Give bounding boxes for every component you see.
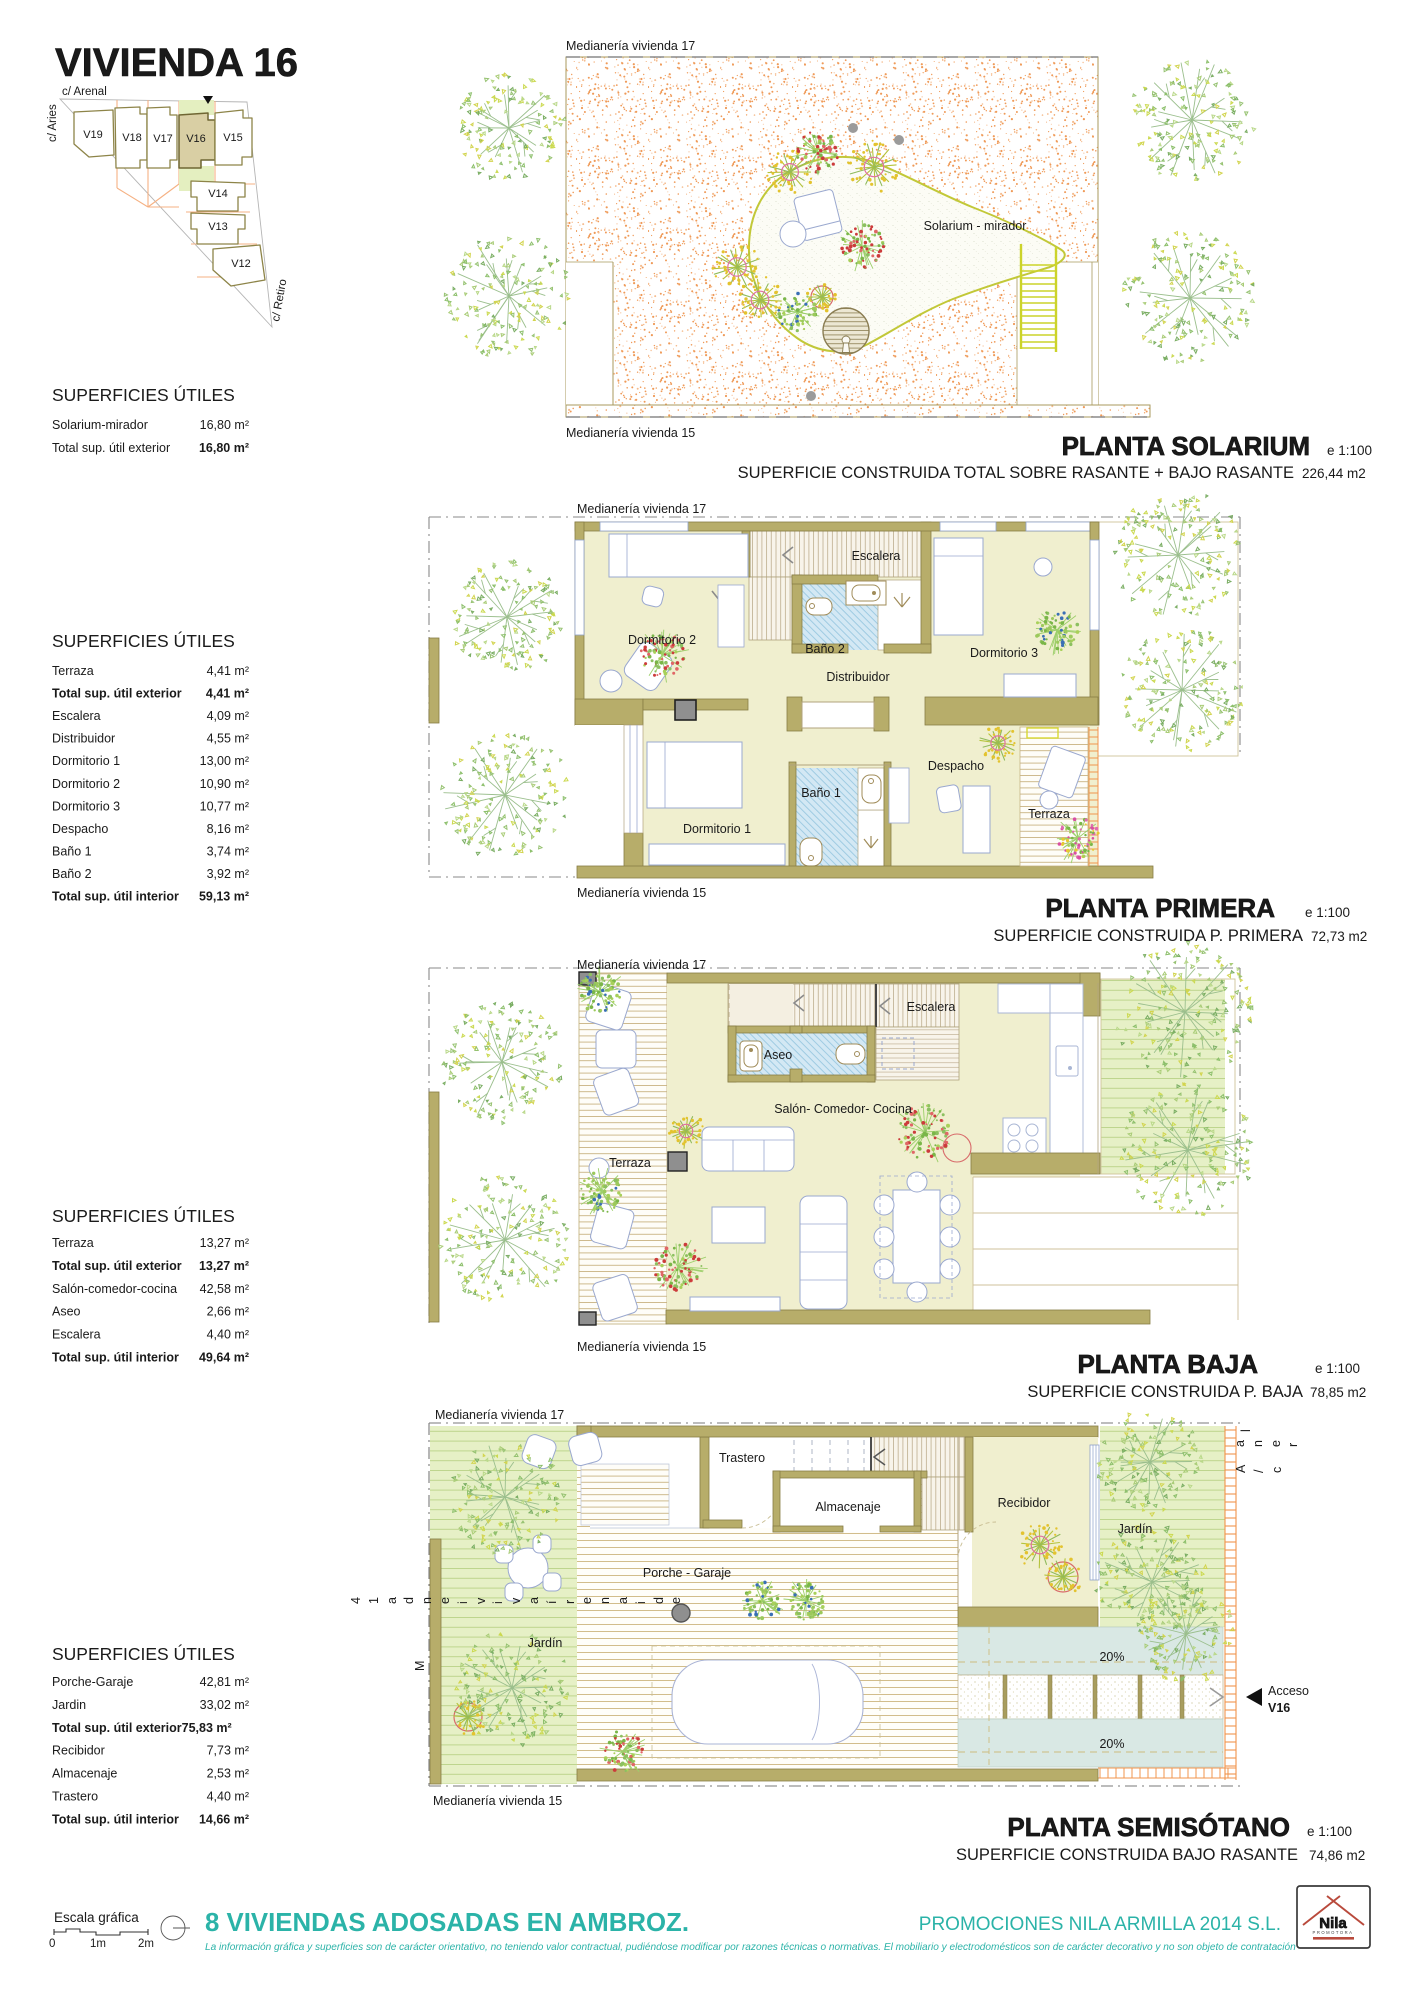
svg-text:4,55 m²: 4,55 m²: [207, 732, 249, 746]
svg-text:Escalera: Escalera: [52, 1328, 101, 1342]
svg-text:Medianería vivienda 15: Medianería vivienda 15: [577, 886, 706, 900]
svg-text:Almacenaje: Almacenaje: [815, 1500, 880, 1514]
svg-text:Medianería vivienda 17: Medianería vivienda 17: [566, 39, 695, 53]
svg-text:a: a: [616, 1597, 630, 1604]
svg-text:SUPERFICIE CONSTRUIDA P. BAJA: SUPERFICIE CONSTRUIDA P. BAJA: [1027, 1383, 1303, 1401]
svg-text:PLANTA SOLARIUM: PLANTA SOLARIUM: [1062, 431, 1310, 461]
svg-text:í: í: [545, 1600, 559, 1604]
svg-text:Aseo: Aseo: [764, 1048, 793, 1062]
svg-text:42,58 m²: 42,58 m²: [200, 1282, 249, 1296]
svg-text:3,74 m²: 3,74 m²: [207, 844, 249, 858]
svg-text:n: n: [1251, 1440, 1265, 1447]
svg-text:c: c: [1270, 1467, 1284, 1473]
svg-text:V13: V13: [208, 221, 228, 233]
svg-text:Total sup. útil exterior: Total sup. útil exterior: [52, 441, 170, 455]
svg-text:l: l: [1239, 1429, 1253, 1432]
svg-text:Distribuidor: Distribuidor: [826, 670, 889, 684]
svg-text:Porche-Garaje: Porche-Garaje: [52, 1675, 133, 1689]
svg-text:20%: 20%: [1099, 1737, 1124, 1751]
svg-text:SUPERFICIES ÚTILES: SUPERFICIES ÚTILES: [52, 1205, 235, 1226]
svg-text:Medianería vivienda 15: Medianería vivienda 15: [577, 1340, 706, 1354]
svg-text:V12: V12: [231, 258, 251, 270]
svg-text:10,77 m²: 10,77 m²: [200, 799, 249, 813]
svg-text:2,66 m²: 2,66 m²: [207, 1305, 249, 1319]
svg-text:SUPERFICIES ÚTILES: SUPERFICIES ÚTILES: [52, 1643, 235, 1664]
svg-text:c/ Retiro: c/ Retiro: [270, 278, 289, 322]
svg-text:V16: V16: [1268, 1701, 1290, 1715]
svg-text:42,81 m²: 42,81 m²: [200, 1675, 249, 1689]
svg-text:a: a: [385, 1597, 399, 1604]
svg-text:c/ Aries: c/ Aries: [47, 104, 59, 142]
svg-text:Terraza: Terraza: [52, 664, 94, 678]
svg-text:Baño 2: Baño 2: [52, 867, 92, 881]
svg-text:7,73 m²: 7,73 m²: [207, 1744, 249, 1758]
svg-text:Dormitorio 2: Dormitorio 2: [628, 633, 696, 647]
svg-text:13,27 m²: 13,27 m²: [200, 1236, 249, 1250]
svg-text:e 1:100: e 1:100: [1315, 1361, 1360, 1376]
svg-text:Salón- Comedor- Cocina: Salón- Comedor- Cocina: [774, 1102, 912, 1116]
svg-text:Salón-comedor-cocina: Salón-comedor-cocina: [52, 1282, 177, 1296]
svg-text:Aseo: Aseo: [52, 1305, 81, 1319]
svg-text:d: d: [402, 1597, 416, 1604]
svg-text:A: A: [1234, 1464, 1248, 1473]
svg-text:i: i: [456, 1601, 470, 1604]
svg-text:2m: 2m: [138, 1938, 154, 1950]
svg-text:Almacenaje: Almacenaje: [52, 1767, 117, 1781]
svg-text:59,13 m²: 59,13 m²: [199, 890, 249, 904]
svg-text:16,80 m²: 16,80 m²: [200, 418, 249, 432]
svg-text:r: r: [1286, 1443, 1300, 1447]
svg-text:74,86 m2: 74,86 m2: [1309, 1848, 1365, 1863]
svg-text:e 1:100: e 1:100: [1327, 443, 1372, 458]
svg-text:3,92 m²: 3,92 m²: [207, 867, 249, 881]
svg-text:Jardin: Jardin: [52, 1698, 86, 1712]
svg-text:i: i: [634, 1601, 648, 1604]
svg-text:Dormitorio 3: Dormitorio 3: [970, 646, 1038, 660]
svg-text:Despacho: Despacho: [928, 759, 984, 773]
svg-text:33,02 m²: 33,02 m²: [200, 1698, 249, 1712]
svg-text:Jardín: Jardín: [1118, 1522, 1153, 1536]
svg-text:Medianería vivienda 17: Medianería vivienda 17: [577, 502, 706, 516]
svg-text:2,53 m²: 2,53 m²: [207, 1767, 249, 1781]
svg-text:v: v: [474, 1597, 488, 1604]
svg-text:Despacho: Despacho: [52, 822, 108, 836]
svg-text:14,66 m²: 14,66 m²: [199, 1812, 249, 1826]
svg-text:SUPERFICIE CONSTRUIDA TOTAL SO: SUPERFICIE CONSTRUIDA TOTAL SOBRE RASANT…: [738, 464, 1294, 482]
svg-text:SUPERFICIES ÚTILES: SUPERFICIES ÚTILES: [52, 630, 235, 651]
svg-text:a: a: [527, 1597, 541, 1604]
svg-text:V17: V17: [153, 133, 173, 145]
svg-text:M: M: [413, 1661, 427, 1671]
svg-text:V18: V18: [122, 132, 142, 144]
svg-text:/: /: [1252, 1469, 1266, 1473]
svg-text:8,16 m²: 8,16 m²: [207, 822, 249, 836]
svg-text:Trastero: Trastero: [52, 1790, 98, 1804]
svg-text:V16: V16: [186, 133, 206, 145]
svg-text:SUPERFICIE CONSTRUIDA BAJO RAS: SUPERFICIE CONSTRUIDA BAJO RASANTE: [956, 1846, 1298, 1864]
svg-text:10,90 m²: 10,90 m²: [200, 777, 249, 791]
svg-text:16,80 m²: 16,80 m²: [199, 441, 249, 455]
svg-text:Medianería vivienda 17: Medianería vivienda 17: [577, 958, 706, 972]
svg-text:4: 4: [349, 1597, 363, 1604]
svg-text:e: e: [1269, 1440, 1283, 1447]
svg-text:4,09 m²: 4,09 m²: [207, 709, 249, 723]
svg-text:Dormitorio 2: Dormitorio 2: [52, 777, 120, 791]
svg-text:e: e: [438, 1597, 452, 1604]
svg-text:Total sup. útil exterior: Total sup. útil exterior: [52, 1259, 182, 1273]
svg-text:20%: 20%: [1099, 1650, 1124, 1664]
svg-text:13,00 m²: 13,00 m²: [200, 754, 249, 768]
svg-text:PLANTA BAJA: PLANTA BAJA: [1077, 1349, 1258, 1379]
svg-text:Dormitorio 1: Dormitorio 1: [683, 822, 751, 836]
svg-text:e 1:100: e 1:100: [1307, 1824, 1352, 1839]
svg-text:VIVIENDA 16: VIVIENDA 16: [55, 41, 298, 85]
svg-text:Escalera: Escalera: [907, 1000, 956, 1014]
svg-text:V19: V19: [83, 129, 103, 141]
svg-text:d: d: [652, 1597, 666, 1604]
svg-text:4,41 m²: 4,41 m²: [207, 664, 249, 678]
svg-text:8 VIVIENDAS ADOSADAS EN AMBROZ: 8 VIVIENDAS ADOSADAS EN AMBROZ.: [205, 1909, 689, 1937]
svg-text:Total sup. útil exterior: Total sup. útil exterior: [52, 687, 182, 701]
svg-text:Recibidor: Recibidor: [52, 1744, 105, 1758]
svg-text:Medianería vivienda 15: Medianería vivienda 15: [566, 426, 695, 440]
svg-text:Solarium - mirador: Solarium - mirador: [924, 219, 1027, 233]
svg-text:Escalera: Escalera: [52, 709, 101, 723]
svg-text:PROMOCIONES NILA ARMILLA 2014: PROMOCIONES NILA ARMILLA 2014 S.L.: [919, 1914, 1281, 1935]
svg-text:PLANTA SEMISÓTANO: PLANTA SEMISÓTANO: [1007, 1812, 1290, 1842]
svg-text:Total sup. útil interior: Total sup. útil interior: [52, 890, 179, 904]
svg-text:Acceso: Acceso: [1268, 1684, 1309, 1698]
svg-text:4,41 m²: 4,41 m²: [206, 687, 249, 701]
svg-text:Total sup. útil interior: Total sup. útil interior: [52, 1812, 179, 1826]
svg-text:226,44 m2: 226,44 m2: [1302, 466, 1366, 481]
svg-text:Terraza: Terraza: [52, 1236, 94, 1250]
svg-text:Recibidor: Recibidor: [998, 1496, 1051, 1510]
svg-text:Medianería vivienda 15: Medianería vivienda 15: [433, 1794, 562, 1808]
svg-text:Solarium-mirador: Solarium-mirador: [52, 418, 148, 432]
svg-text:PROMOTORA: PROMOTORA: [1313, 1930, 1354, 1935]
svg-text:r: r: [563, 1600, 577, 1604]
svg-text:Escala gráfica: Escala gráfica: [54, 1910, 139, 1925]
svg-text:Terraza: Terraza: [1028, 807, 1070, 821]
svg-text:Porche - Garaje: Porche - Garaje: [643, 1566, 731, 1580]
svg-text:49,64 m²: 49,64 m²: [199, 1351, 249, 1365]
svg-text:Escalera: Escalera: [852, 549, 901, 563]
svg-text:c/ Arenal: c/ Arenal: [62, 86, 107, 98]
svg-text:e: e: [580, 1597, 594, 1604]
svg-text:Jardín: Jardín: [528, 1636, 563, 1650]
svg-text:e 1:100: e 1:100: [1305, 905, 1350, 920]
svg-text:PLANTA PRIMERA: PLANTA PRIMERA: [1045, 893, 1275, 923]
svg-text:Baño 1: Baño 1: [52, 844, 92, 858]
svg-text:Total sup. útil exterior75,83: Total sup. útil exterior75,83 m²: [52, 1721, 232, 1735]
svg-text:Medianería vivienda 17: Medianería vivienda 17: [435, 1408, 564, 1422]
svg-text:4,40 m²: 4,40 m²: [207, 1328, 249, 1342]
svg-text:a: a: [1233, 1440, 1247, 1447]
svg-text:78,85 m2: 78,85 m2: [1310, 1385, 1366, 1400]
svg-text:SUPERFICIES ÚTILES: SUPERFICIES ÚTILES: [52, 384, 235, 405]
svg-text:72,73 m2: 72,73 m2: [1311, 929, 1367, 944]
svg-text:Trastero: Trastero: [719, 1451, 765, 1465]
svg-text:1: 1: [367, 1597, 381, 1604]
svg-text:Dormitorio 3: Dormitorio 3: [52, 799, 120, 813]
svg-text:n: n: [598, 1597, 612, 1604]
svg-text:v: v: [509, 1597, 523, 1604]
svg-text:SUPERFICIE CONSTRUIDA P. PRIME: SUPERFICIE CONSTRUIDA P. PRIMERA: [993, 927, 1303, 945]
svg-text:V14: V14: [208, 188, 228, 200]
svg-text:4,40 m²: 4,40 m²: [207, 1790, 249, 1804]
svg-text:n: n: [420, 1597, 434, 1604]
svg-text:Baño 1: Baño 1: [801, 786, 841, 800]
svg-text:Terraza: Terraza: [609, 1156, 651, 1170]
svg-text:Distribuidor: Distribuidor: [52, 732, 115, 746]
svg-text:0: 0: [49, 1938, 55, 1950]
svg-text:V15: V15: [223, 132, 243, 144]
svg-text:1m: 1m: [90, 1938, 106, 1950]
svg-text:e: e: [669, 1597, 683, 1604]
svg-text:i: i: [491, 1601, 505, 1604]
svg-text:13,27 m²: 13,27 m²: [199, 1259, 249, 1273]
svg-text:Dormitorio 1: Dormitorio 1: [52, 754, 120, 768]
svg-text:Total sup. útil interior: Total sup. útil interior: [52, 1351, 179, 1365]
svg-text:Baño 2: Baño 2: [805, 642, 845, 656]
svg-text:La información gráfica y super: La información gráfica y superficies son…: [205, 1942, 1296, 1953]
